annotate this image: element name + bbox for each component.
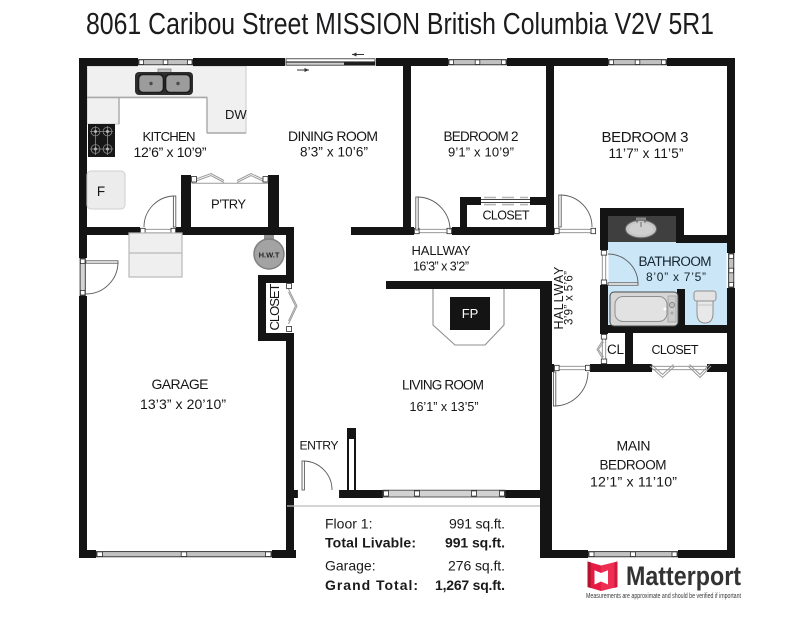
svg-text:BEDROOM 2: BEDROOM 2 <box>444 129 519 144</box>
svg-text:3’9” x 5’6”: 3’9” x 5’6” <box>564 271 576 325</box>
svg-text:Measurements are approximate a: Measurements are approximate and should … <box>586 593 741 600</box>
svg-text:F: F <box>97 184 105 199</box>
svg-text:Floor 1:: Floor 1: <box>325 516 372 532</box>
svg-text:BATHROOM: BATHROOM <box>639 254 712 269</box>
svg-text:9’1” x 10’9”: 9’1” x 10’9” <box>448 145 514 160</box>
svg-text:11’7” x 11’5”: 11’7” x 11’5” <box>609 146 684 161</box>
svg-text:12’6” x 10’9”: 12’6” x 10’9” <box>134 144 207 160</box>
svg-text:H.W.T: H.W.T <box>259 251 280 260</box>
svg-text:DW: DW <box>225 107 247 122</box>
svg-text:BEDROOM 3: BEDROOM 3 <box>602 129 689 146</box>
svg-text:FP: FP <box>462 306 479 321</box>
svg-text:16’3” x 3’2”: 16’3” x 3’2” <box>413 260 469 274</box>
svg-text:CL: CL <box>607 342 624 357</box>
svg-text:ENTRY: ENTRY <box>300 439 339 453</box>
svg-text:LIVING ROOM: LIVING ROOM <box>402 378 484 393</box>
svg-text:Grand Total:: Grand Total: <box>325 577 418 593</box>
svg-text:Total Livable:: Total Livable: <box>325 535 416 551</box>
svg-text:8061 Caribou Street MISSION Br: 8061 Caribou Street MISSION British Colu… <box>86 6 714 41</box>
svg-text:CLOSET: CLOSET <box>267 283 282 330</box>
svg-text:MAIN: MAIN <box>617 438 651 454</box>
svg-text:DINING ROOM: DINING ROOM <box>288 128 378 144</box>
svg-text:12’1” x 11’10”: 12’1” x 11’10” <box>590 475 677 491</box>
svg-text:HALLWAY: HALLWAY <box>412 243 471 258</box>
svg-text:Matterport: Matterport <box>626 561 741 591</box>
svg-text:276 sq.ft.: 276 sq.ft. <box>448 558 505 574</box>
svg-text:8’3” x 10’6”: 8’3” x 10’6” <box>300 145 368 160</box>
svg-text:13’3” x 20’10”: 13’3” x 20’10” <box>140 396 226 412</box>
svg-text:Garage:: Garage: <box>325 558 376 574</box>
svg-text:BEDROOM: BEDROOM <box>600 458 667 473</box>
svg-text:1,267 sq.ft.: 1,267 sq.ft. <box>435 577 505 593</box>
svg-text:P’TRY: P’TRY <box>211 197 246 212</box>
svg-text:CLOSET: CLOSET <box>652 343 699 357</box>
svg-text:991 sq.ft.: 991 sq.ft. <box>445 535 505 551</box>
svg-text:CLOSET: CLOSET <box>483 209 530 223</box>
svg-text:16’1” x 13’5”: 16’1” x 13’5” <box>410 400 479 414</box>
svg-text:GARAGE: GARAGE <box>152 376 209 392</box>
svg-text:8’0” x 7’5”: 8’0” x 7’5” <box>646 270 706 284</box>
svg-text:991 sq.ft.: 991 sq.ft. <box>449 516 505 532</box>
svg-text:KITCHEN: KITCHEN <box>143 129 196 144</box>
